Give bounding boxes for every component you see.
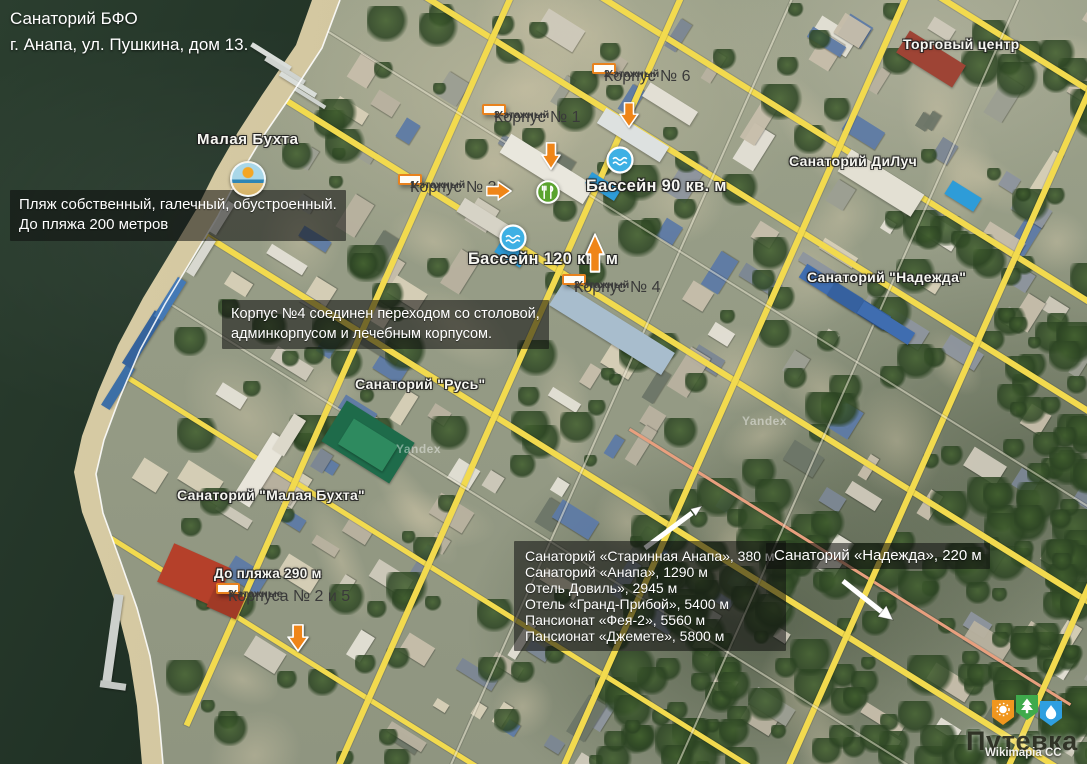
callout-subtitle: 2-этажный bbox=[604, 68, 659, 80]
map-canvas[interactable]: Санаторий БФО г. Анапа, ул. Пушкина, дом… bbox=[0, 0, 1087, 764]
map-label-diluch: Санаторий ДиЛуч bbox=[789, 153, 917, 169]
distance-line: Санаторий «Старинная Анапа», 380 м bbox=[525, 548, 775, 564]
building bbox=[857, 301, 915, 345]
callout-korpus-2-5: Корпуса № 2 и 5 3-этажные bbox=[216, 583, 240, 594]
pool-icon bbox=[499, 224, 527, 252]
beach-icon bbox=[230, 161, 266, 197]
callout-arrow-right-icon bbox=[486, 181, 512, 201]
pool bbox=[944, 180, 981, 212]
map-label-nadezhda: Санаторий "Надежда" bbox=[807, 269, 966, 285]
callout-subtitle: 1-этажный bbox=[410, 179, 465, 191]
beach-pavilion bbox=[101, 364, 135, 410]
info-line: Пляж собственный, галечный, обустроенный… bbox=[19, 195, 337, 215]
wikimapia-attribution[interactable]: Wikimapia CC bbox=[985, 747, 1062, 759]
beach-pavilion bbox=[154, 277, 187, 321]
map-label-bay: Малая Бухта bbox=[197, 131, 299, 148]
distance-line: Санаторий «Анапа», 1290 м bbox=[525, 564, 775, 580]
info-box-nadezhda-distance: Санаторий «Надежда», 220 м bbox=[766, 543, 990, 569]
logo-tree-icon bbox=[1016, 695, 1038, 720]
distance-line: Отель «Гранд-Прибой», 5400 м bbox=[525, 596, 775, 612]
info-box-beach: Пляж собственный, галечный, обустроенный… bbox=[10, 190, 346, 241]
marina-dock bbox=[250, 42, 292, 71]
distance-line: Отель Довиль», 2945 м bbox=[525, 580, 775, 596]
callout-subtitle: 3-этажный bbox=[494, 109, 549, 121]
info-box-korpus4-note: Корпус №4 соединен переходом со столовой… bbox=[222, 300, 549, 349]
callout-korpus-4: Корпус № 4 2-этажный bbox=[562, 274, 586, 285]
yandex-watermark: Yandex bbox=[396, 442, 441, 456]
yandex-watermark: Yandex bbox=[742, 414, 787, 428]
callout-korpus-6: Корпус № 6 2-этажный bbox=[592, 63, 616, 74]
beach-pavilion bbox=[186, 236, 216, 276]
callout-arrow-down-icon bbox=[287, 624, 309, 652]
building bbox=[642, 82, 698, 125]
callout-subtitle: 3-этажные bbox=[228, 588, 283, 600]
page-title: Санаторий БФО г. Анапа, ул. Пушкина, дом… bbox=[10, 6, 248, 57]
title-line: Санаторий БФО bbox=[10, 6, 248, 32]
marina-dock bbox=[264, 56, 306, 85]
info-line: админкорпусом и лечебным корпусом. bbox=[231, 325, 540, 345]
callout-arrow-down-icon bbox=[619, 102, 639, 128]
callout-korpus-1: Корпус № 1 3-этажный bbox=[482, 104, 506, 115]
info-line: До пляжа 200 метров bbox=[19, 215, 337, 235]
callout-korpus-3: Корпус № 3 1-этажный bbox=[398, 174, 422, 185]
title-line: г. Анапа, ул. Пушкина, дом 13. bbox=[10, 32, 248, 58]
pier bbox=[100, 680, 127, 691]
map-label-beach-290: До пляжа 290 м bbox=[214, 566, 322, 581]
map-label-pool-90: Бассейн 90 кв. м bbox=[586, 177, 727, 196]
callout-subtitle: 2-этажный bbox=[574, 279, 629, 291]
callout-arrow-down-icon bbox=[541, 142, 561, 170]
map-label-mall: Торговый центр bbox=[903, 36, 1020, 52]
restaurant-icon bbox=[536, 180, 560, 204]
pool-icon bbox=[606, 146, 634, 174]
distance-line: Пансионат «Фея-2», 5560 м bbox=[525, 612, 775, 628]
map-label-malaya-bukhta: Санаторий "Малая Бухта" bbox=[177, 487, 365, 503]
map-label-rus: Санаторий "Русь" bbox=[355, 376, 485, 392]
distance-line: Пансионат «Джемете», 5800 м bbox=[525, 628, 775, 644]
info-line: Корпус №4 соединен переходом со столовой… bbox=[231, 305, 540, 325]
logo-drop-icon bbox=[1040, 701, 1062, 726]
info-box-distances: Санаторий «Старинная Анапа», 380 м Санат… bbox=[514, 541, 786, 651]
callout-arrow-up-icon bbox=[585, 233, 605, 273]
pier bbox=[102, 594, 124, 688]
logo-sun-icon bbox=[992, 700, 1014, 725]
